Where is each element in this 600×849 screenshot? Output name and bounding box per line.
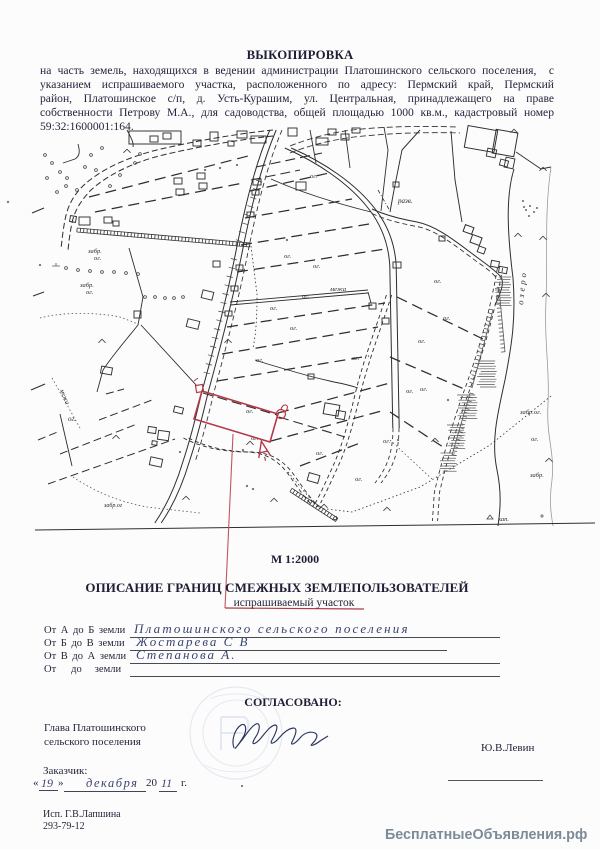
svg-text:ог.: ог.: [420, 386, 428, 393]
svg-text:ог.: ог.: [313, 263, 321, 270]
svg-text:ог.: ог.: [531, 436, 539, 443]
svg-text:ог.: ог.: [434, 278, 442, 285]
svg-text:ог.: ог.: [270, 305, 278, 312]
svg-text:межа: межа: [58, 387, 71, 405]
svg-text:ог.: ог.: [352, 355, 360, 362]
svg-text:ог.: ог.: [302, 293, 310, 300]
svg-text:ог.: ог.: [290, 325, 298, 332]
svg-text:ог.: ог.: [310, 173, 318, 180]
svg-text:кап.: кап.: [498, 516, 509, 523]
svg-text:ог.: ог.: [418, 338, 426, 345]
svg-text:забр.: забр.: [79, 282, 94, 289]
svg-text:ог.: ог.: [443, 315, 451, 322]
svg-text:межа: межа: [329, 286, 346, 293]
svg-text:ог.: ог.: [383, 438, 391, 445]
svg-text:ог.: ог.: [406, 388, 414, 395]
svg-text:ог.: ог.: [94, 255, 102, 262]
svg-text:забр.: забр.: [529, 472, 544, 479]
svg-text:ог.: ог.: [284, 253, 292, 260]
svg-text:забр.ог: забр.ог: [103, 502, 123, 509]
svg-text:ог.: ог.: [86, 289, 94, 296]
svg-text:ог.: ог.: [256, 357, 264, 364]
svg-text:озеро: озеро: [515, 270, 529, 306]
svg-text:разв.: разв.: [397, 197, 413, 205]
svg-text:забр.: забр.: [87, 248, 102, 255]
svg-text:ог.: ог.: [316, 450, 324, 457]
svg-text:ог.: ог.: [246, 408, 254, 415]
svg-text:забр.ог.: забр.ог.: [519, 409, 542, 416]
svg-text:ог.: ог.: [355, 476, 363, 483]
svg-text:ог.: ог.: [68, 415, 76, 423]
